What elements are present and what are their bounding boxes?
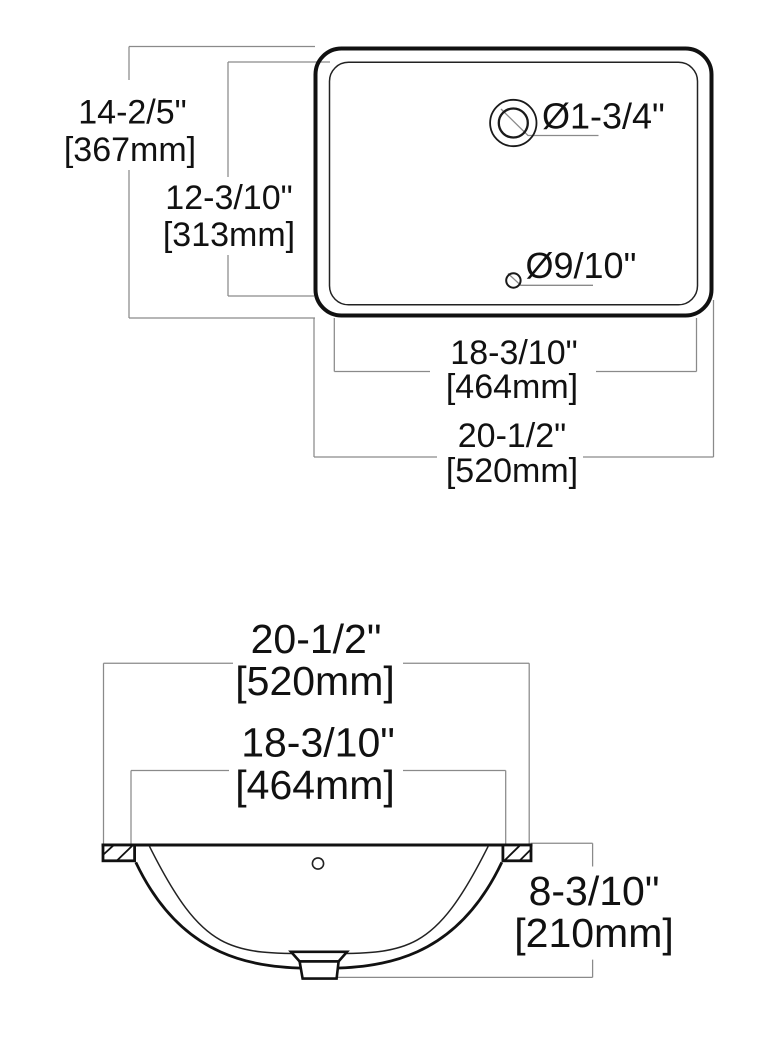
svg-text:[367mm]: [367mm] bbox=[64, 131, 196, 169]
svg-text:18-3/10": 18-3/10" bbox=[241, 720, 395, 766]
svg-text:12-3/10": 12-3/10" bbox=[165, 179, 292, 217]
svg-text:20-1/2": 20-1/2" bbox=[458, 417, 566, 455]
svg-text:[464mm]: [464mm] bbox=[235, 762, 395, 808]
svg-text:[313mm]: [313mm] bbox=[163, 216, 295, 254]
svg-text:Ø9/10": Ø9/10" bbox=[526, 245, 637, 286]
svg-text:[520mm]: [520mm] bbox=[235, 658, 395, 704]
svg-text:Ø1-3/4": Ø1-3/4" bbox=[542, 96, 665, 137]
svg-text:[210mm]: [210mm] bbox=[514, 910, 674, 956]
svg-text:[464mm]: [464mm] bbox=[446, 368, 578, 406]
svg-text:14-2/5": 14-2/5" bbox=[78, 94, 186, 132]
svg-text:20-1/2": 20-1/2" bbox=[251, 616, 382, 662]
svg-text:18-3/10": 18-3/10" bbox=[450, 334, 577, 372]
svg-text:8-3/10": 8-3/10" bbox=[529, 868, 660, 914]
svg-text:[520mm]: [520mm] bbox=[446, 452, 578, 490]
